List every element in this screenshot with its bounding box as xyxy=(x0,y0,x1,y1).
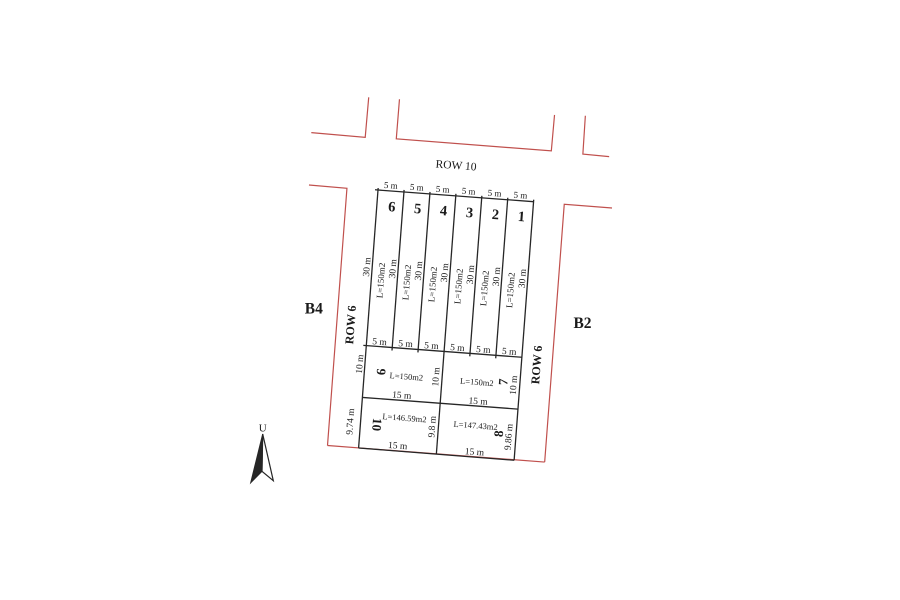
svg-text:10 m: 10 m xyxy=(355,354,366,375)
svg-text:30 m: 30 m xyxy=(388,258,399,279)
svg-text:5 m: 5 m xyxy=(513,190,527,201)
svg-text:5 m: 5 m xyxy=(461,186,475,197)
svg-text:5 m: 5 m xyxy=(502,347,518,358)
svg-text:5 m: 5 m xyxy=(450,343,466,354)
svg-text:30 m: 30 m xyxy=(362,256,373,277)
svg-text:15 m: 15 m xyxy=(392,390,413,401)
svg-text:5 m: 5 m xyxy=(424,341,440,352)
svg-text:1: 1 xyxy=(517,209,525,225)
svg-text:10 m: 10 m xyxy=(431,366,442,387)
svg-text:2: 2 xyxy=(491,207,499,223)
svg-text:15 m: 15 m xyxy=(464,447,485,458)
svg-text:30 m: 30 m xyxy=(466,264,477,285)
svg-text:5 m: 5 m xyxy=(487,188,501,199)
svg-text:5: 5 xyxy=(413,201,421,217)
svg-text:5 m: 5 m xyxy=(410,182,424,193)
svg-text:B4: B4 xyxy=(305,301,323,318)
svg-text:B2: B2 xyxy=(573,315,591,332)
svg-text:30 m: 30 m xyxy=(440,262,451,283)
svg-text:9.8 m: 9.8 m xyxy=(427,415,439,438)
svg-text:5 m: 5 m xyxy=(384,180,398,191)
svg-text:30 m: 30 m xyxy=(518,268,529,289)
svg-text:5 m: 5 m xyxy=(398,339,414,350)
svg-text:10 m: 10 m xyxy=(509,375,520,396)
svg-text:6: 6 xyxy=(388,199,396,215)
svg-text:5 m: 5 m xyxy=(372,337,388,348)
svg-text:30 m: 30 m xyxy=(492,266,503,287)
svg-text:4: 4 xyxy=(439,203,447,219)
svg-text:ROW 6: ROW 6 xyxy=(342,305,359,345)
svg-text:15 m: 15 m xyxy=(468,396,489,407)
svg-text:9.74 m: 9.74 m xyxy=(345,408,357,436)
svg-text:30 m: 30 m xyxy=(414,260,425,281)
svg-text:5 m: 5 m xyxy=(476,345,492,356)
svg-text:ROW 6: ROW 6 xyxy=(528,345,545,385)
svg-text:15 m: 15 m xyxy=(388,441,409,452)
svg-text:3: 3 xyxy=(465,205,473,221)
svg-text:5 m: 5 m xyxy=(436,184,450,195)
svg-text:9.86 m: 9.86 m xyxy=(504,423,516,451)
svg-text:U: U xyxy=(259,422,267,434)
